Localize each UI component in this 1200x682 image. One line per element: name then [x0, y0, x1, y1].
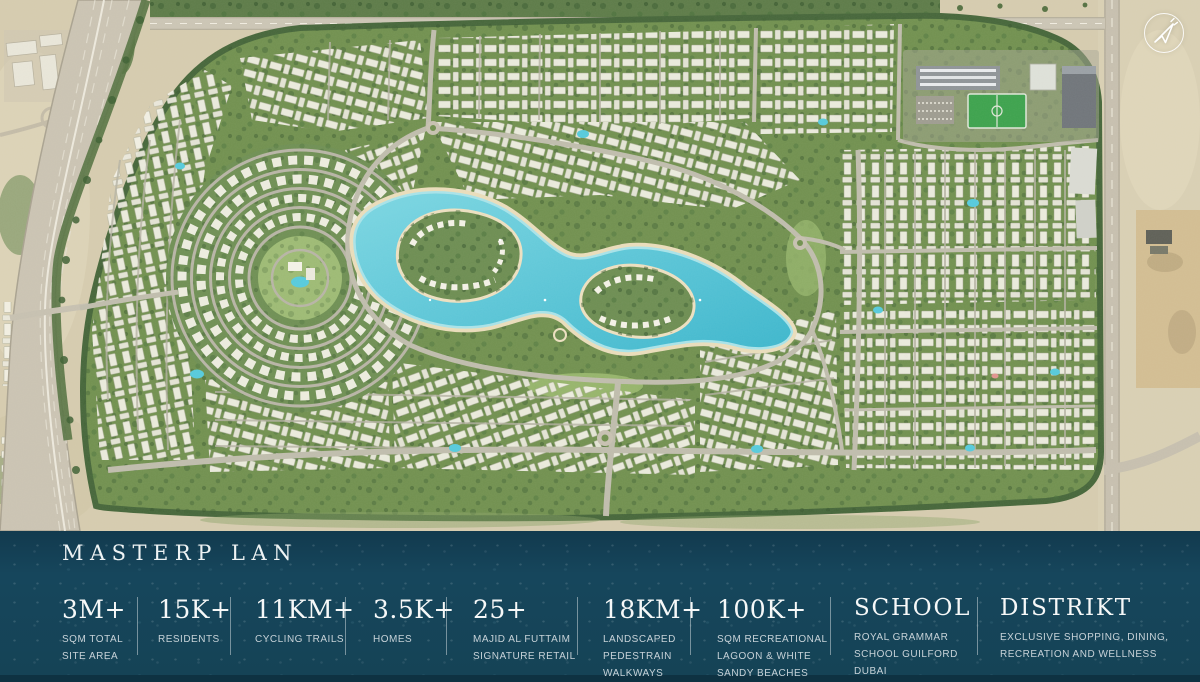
section-title: MASTERP LAN: [62, 541, 298, 565]
masterplan-page: MASTERP LAN 3M+ SQM TOTAL SITE AREA 15K+…: [0, 0, 1200, 675]
masterplan-svg: [0, 0, 1200, 531]
stat-pedestrian-walkways: 18KM+ LANDSCAPED PEDESTRAIN WALKWAYS: [603, 597, 693, 682]
stat-label: EXCLUSIVE SHOPPING, DINING, RECREATION A…: [1000, 629, 1200, 663]
stat-value: SCHOOL: [854, 597, 972, 620]
stat-divider: [230, 597, 231, 655]
stat-divider: [830, 597, 831, 655]
stat-school: SCHOOL ROYAL GRAMMAR SCHOOL GUILFORD DUB…: [854, 597, 972, 680]
stat-divider: [345, 597, 346, 655]
stat-label: SQM RECREATIONAL LAGOON & WHITE SANDY BE…: [717, 631, 835, 682]
grain-overlay: [0, 0, 1200, 531]
masterplan-map-image: [0, 0, 1200, 531]
stat-label: HOMES: [373, 631, 453, 648]
stat-divider: [137, 597, 138, 655]
stat-lagoon: 100K+ SQM RECREATIONAL LAGOON & WHITE SA…: [717, 597, 835, 682]
stat-label: SQM TOTAL SITE AREA: [62, 631, 140, 665]
stat-value: 18KM+: [603, 597, 693, 622]
masterplan-info-band: MASTERP LAN 3M+ SQM TOTAL SITE AREA 15K+…: [0, 531, 1200, 675]
stat-distrikt: DISTRIKT EXCLUSIVE SHOPPING, DINING, REC…: [1000, 597, 1200, 663]
stat-homes: 3.5K+ HOMES: [373, 597, 453, 648]
stat-label: LANDSCAPED PEDESTRAIN WALKWAYS: [603, 631, 693, 682]
brand-logo: [1144, 13, 1184, 53]
stat-value: 3.5K+: [373, 597, 453, 622]
stat-signature-retail: 25+ MAJID AL FUTTAIM SIGNATURE RETAIL: [473, 597, 585, 665]
stat-value: DISTRIKT: [1000, 597, 1200, 620]
stat-site-area: 3M+ SQM TOTAL SITE AREA: [62, 597, 140, 665]
paper-plane-icon: [1147, 16, 1181, 50]
stat-divider: [977, 597, 978, 655]
stat-divider: [690, 597, 691, 655]
stat-value: 25+: [473, 597, 585, 622]
stat-divider: [446, 597, 447, 655]
stat-label: ROYAL GRAMMAR SCHOOL GUILFORD DUBAI: [854, 629, 972, 680]
stat-label: MAJID AL FUTTAIM SIGNATURE RETAIL: [473, 631, 585, 665]
stat-value: 100K+: [717, 597, 835, 622]
stat-divider: [577, 597, 578, 655]
stat-value: 3M+: [62, 597, 140, 622]
